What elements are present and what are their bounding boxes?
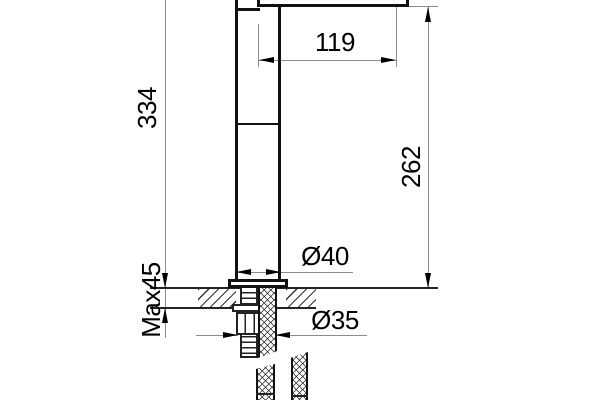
spout-left-wall — [257, 0, 260, 7]
supply-hose-lower-fitting-line — [256, 393, 275, 395]
dim-label-total-height: 334 — [134, 87, 160, 129]
spout-bottom-edge — [257, 4, 409, 7]
supply-hose-second-fitting-line — [291, 395, 308, 397]
arrow-262-top — [425, 7, 431, 22]
arrow-d40-right — [266, 269, 281, 275]
mounting-nut — [236, 312, 261, 335]
extension-line-119-right — [396, 7, 397, 67]
arrow-d35-left — [223, 332, 238, 338]
dim-label-spout-height: 262 — [398, 146, 424, 188]
countertop-hatch-left — [198, 289, 236, 307]
faucet-body-top-cap-line — [235, 8, 260, 11]
dim-label-hole-diameter: Ø35 — [311, 307, 359, 333]
arrow-d35-right — [275, 332, 290, 338]
dimension-line-d40 — [236, 272, 353, 273]
dimension-line-262 — [428, 7, 429, 288]
supply-hose-lower — [256, 364, 275, 400]
faucet-body-right-edge — [278, 6, 281, 281]
spout-right-wall — [406, 0, 409, 7]
supply-hose-second — [291, 352, 308, 400]
faucet-body-left-edge — [235, 0, 238, 281]
base-flange — [228, 279, 288, 288]
dim-label-max-deck-thickness: Max45 — [138, 262, 164, 338]
supply-hose-upper — [258, 288, 277, 358]
mounting-washer — [232, 304, 262, 312]
arrow-d40-left — [236, 269, 251, 275]
arrow-119-left — [259, 57, 274, 63]
faucet-body-joint-line — [236, 123, 280, 125]
arrow-119-right — [381, 57, 396, 63]
technical-drawing-canvas: 119 334 262 Ø40 Ø35 Max45 — [0, 0, 600, 400]
dim-label-body-diameter: Ø40 — [301, 243, 349, 269]
dim-label-spout-reach: 119 — [315, 29, 355, 55]
extension-line-262-top — [409, 6, 438, 7]
arrow-262-bottom — [425, 273, 431, 288]
